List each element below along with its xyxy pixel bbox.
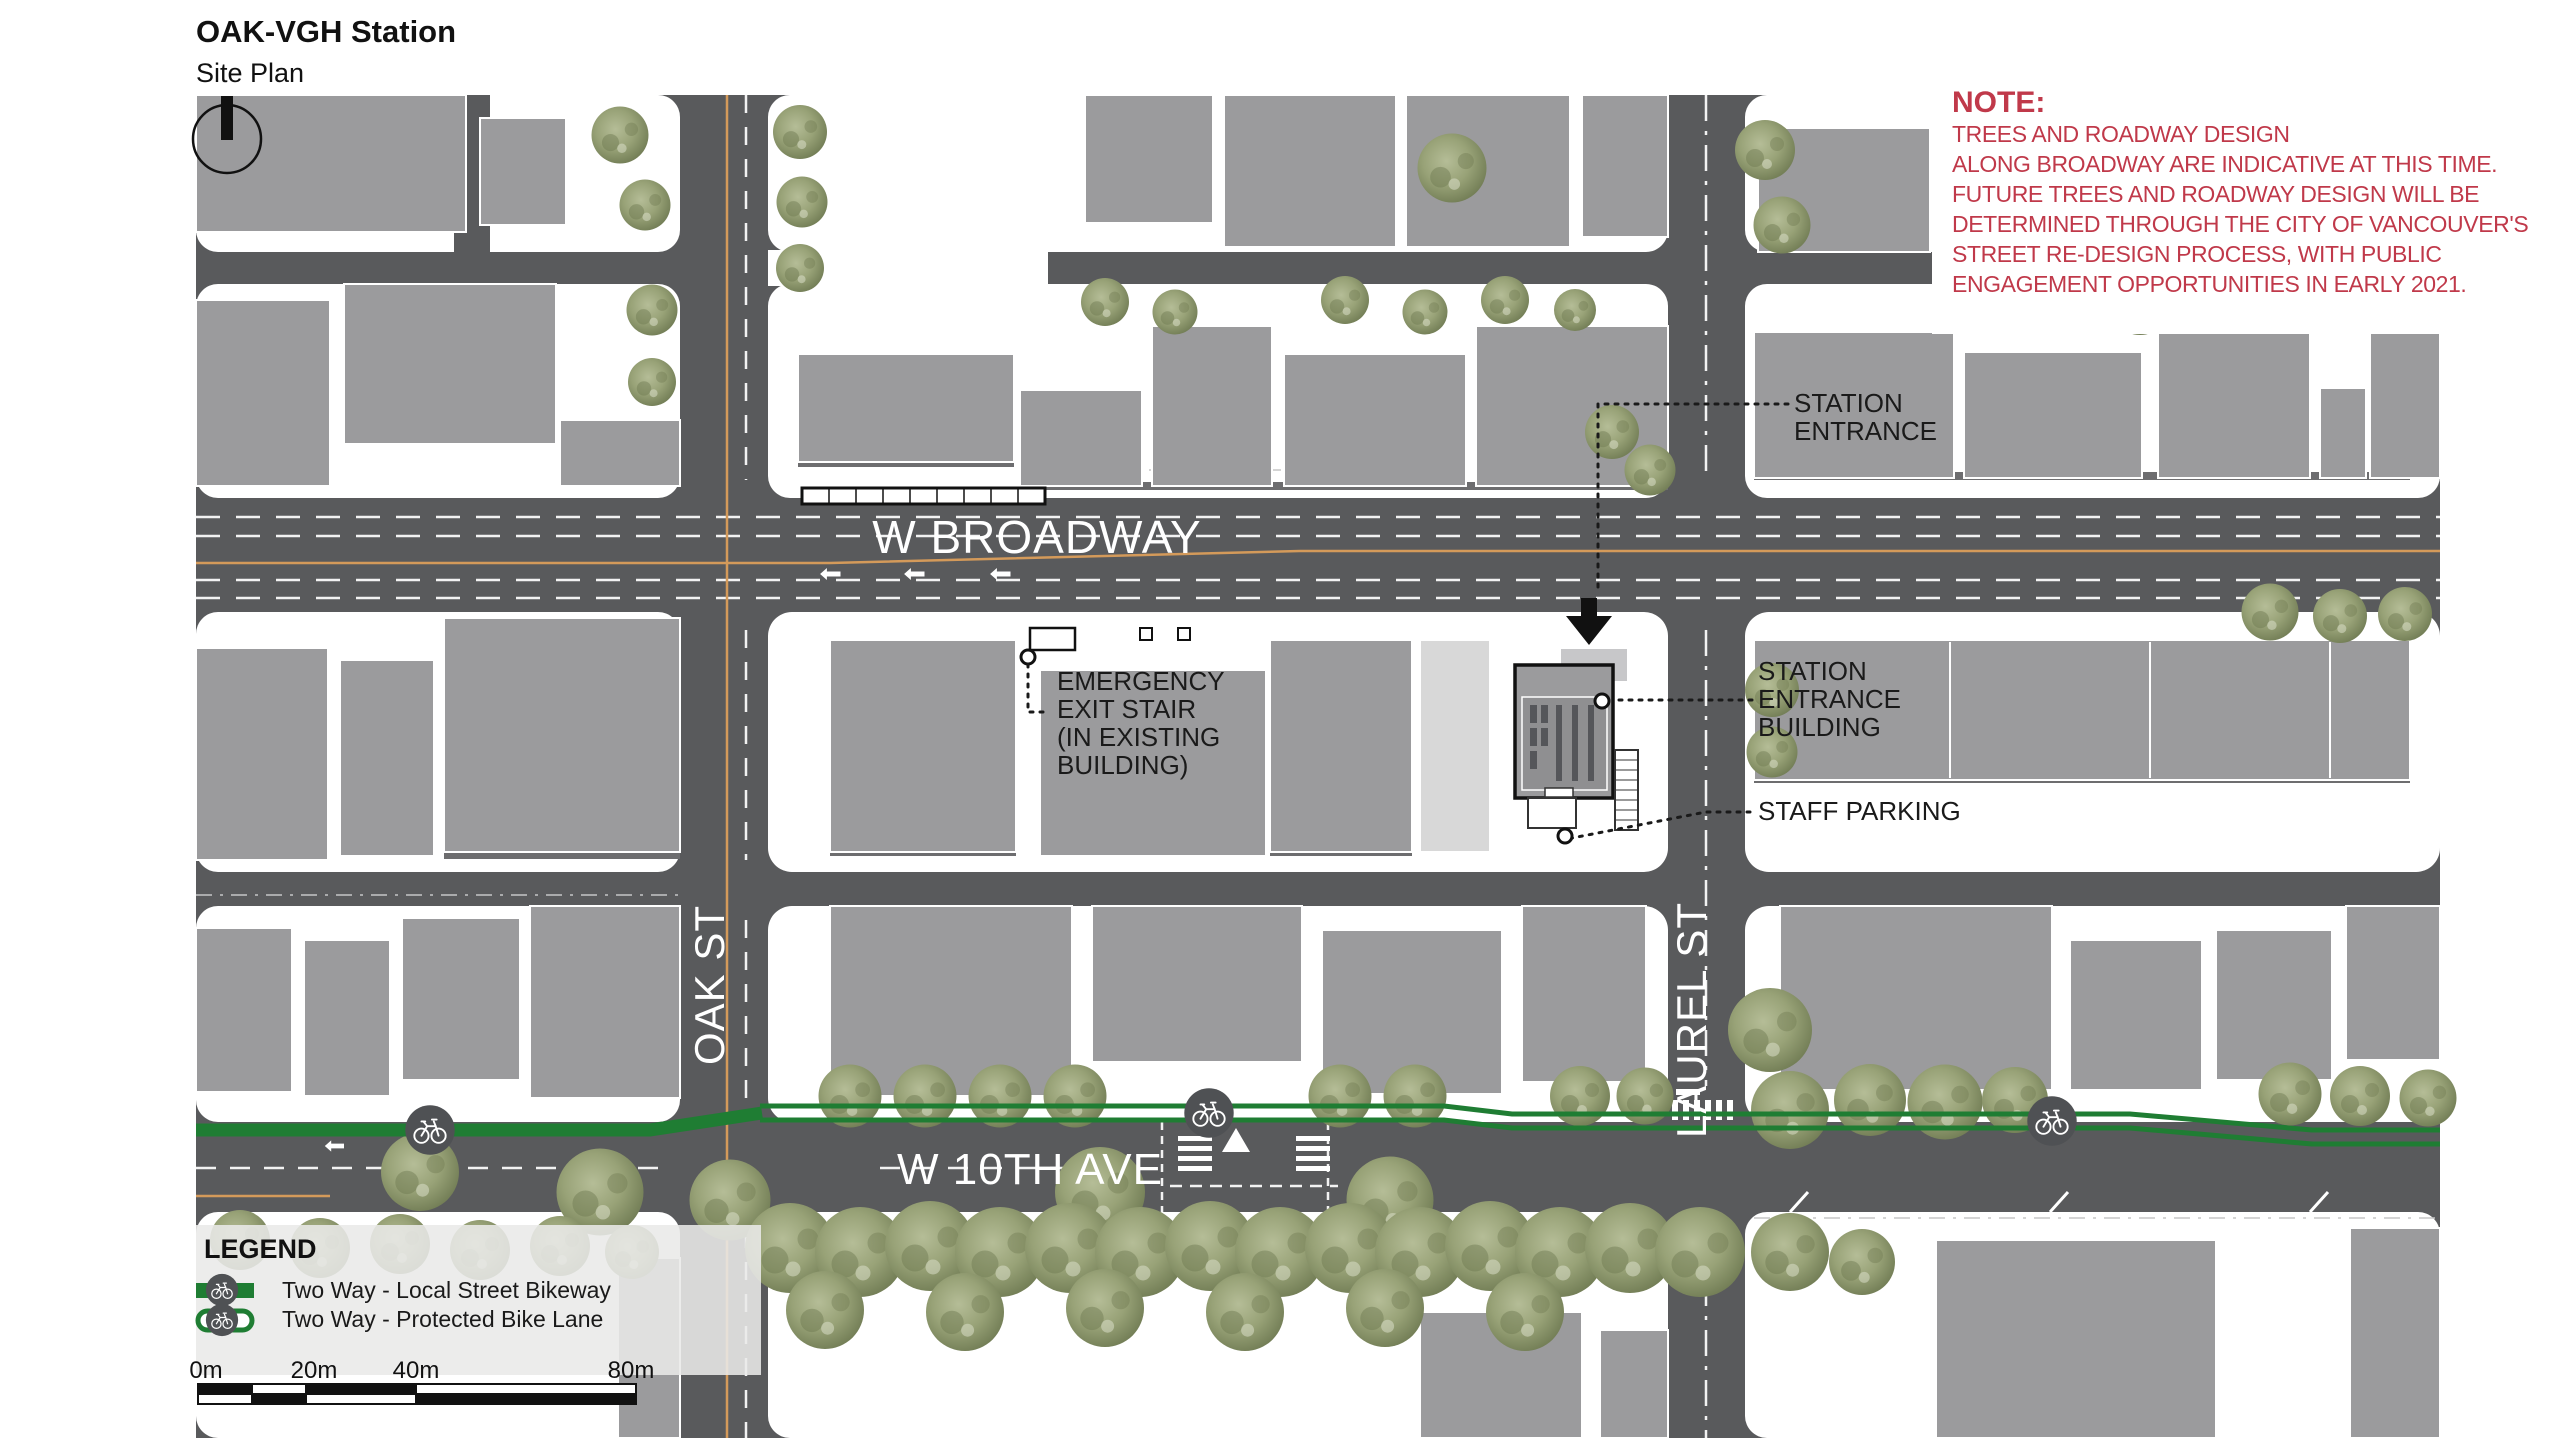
page-subtitle: Site Plan: [196, 58, 304, 88]
legend-bike-icon: [206, 1304, 238, 1336]
site-plan-map: W BROADWAY W 10TH AVE OAK ST LAUREL ST S…: [0, 0, 2560, 1438]
street-label-10th-ave: W 10TH AVE: [897, 1145, 1163, 1194]
legend-heading: LEGEND: [204, 1234, 317, 1264]
legend-panel: LEGEND Two Way - Local Street Bikeway Tw…: [196, 1225, 761, 1375]
page-title: OAK-VGH Station: [196, 14, 456, 49]
legend-item-label: Two Way - Protected Bike Lane: [282, 1306, 603, 1332]
staff-parking-label: STAFF PARKING: [1758, 796, 1961, 826]
scale-label-0m: 0m: [189, 1357, 222, 1384]
note-heading: NOTE:: [1952, 86, 2045, 119]
bike-route-icon: [405, 1105, 454, 1154]
bike-route-icon: [1184, 1088, 1233, 1137]
bike-route-icon: [2027, 1096, 2076, 1145]
bus-stop: [802, 488, 1045, 504]
scale-label-40m: 40m: [393, 1357, 440, 1384]
scale-label-80m: 80m: [608, 1357, 655, 1384]
street-label-laurel-st: LAUREL ST: [1668, 902, 1715, 1138]
legend-bike-icon: [206, 1274, 238, 1306]
legend-item-label: Two Way - Local Street Bikeway: [282, 1277, 611, 1303]
street-label-broadway: W BROADWAY: [872, 511, 1201, 563]
scale-label-20m: 20m: [291, 1357, 338, 1384]
street-label-oak-st: OAK ST: [686, 905, 733, 1065]
